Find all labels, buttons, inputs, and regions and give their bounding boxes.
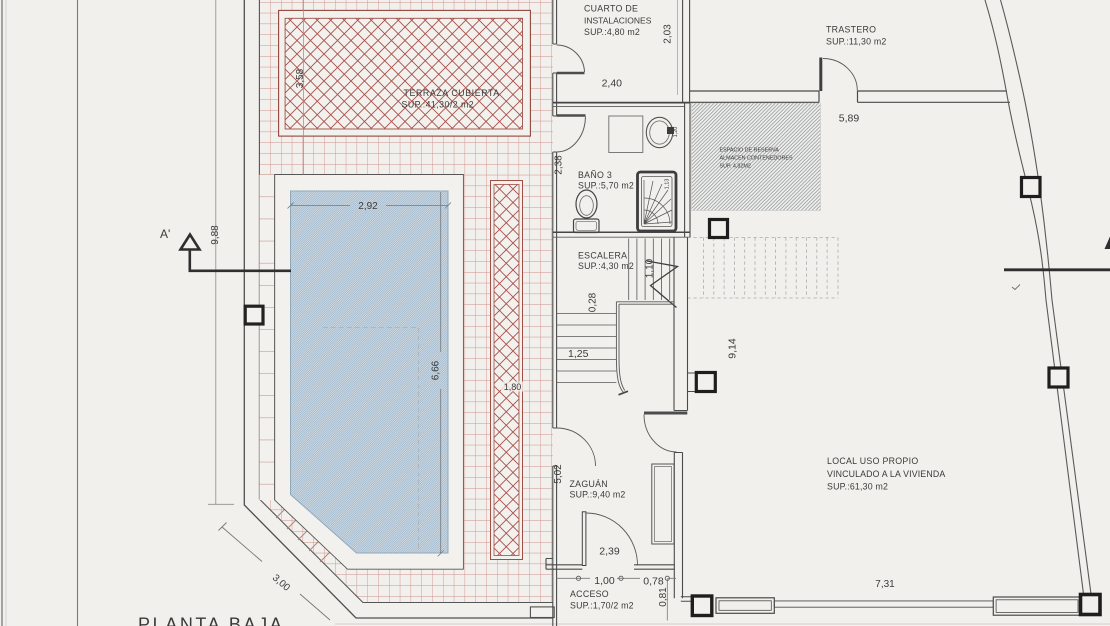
- svg-text:1,25: 1,25: [568, 348, 589, 360]
- svg-text:1,10: 1,10: [645, 258, 656, 278]
- svg-text:SUP.:5,70 m2: SUP.:5,70 m2: [578, 181, 634, 191]
- svg-text:ZAGUÁN: ZAGUÁN: [570, 479, 608, 489]
- svg-text:2,03: 2,03: [663, 24, 674, 44]
- svg-text:5,02: 5,02: [553, 464, 564, 484]
- svg-text:5,89: 5,89: [839, 113, 860, 125]
- svg-text:9,14: 9,14: [727, 338, 739, 359]
- svg-text:SUP. 4,82M2: SUP. 4,82M2: [720, 164, 751, 170]
- svg-text:ALMACEN CONTENEDORES: ALMACEN CONTENEDORES: [720, 156, 793, 162]
- svg-text:SUP.:41,30/2 m2: SUP.:41,30/2 m2: [402, 100, 475, 110]
- svg-text:2,40: 2,40: [602, 78, 623, 90]
- svg-text:A': A': [160, 227, 170, 241]
- svg-text:INSTALACIONES: INSTALACIONES: [584, 16, 652, 26]
- svg-text:CUARTO DE: CUARTO DE: [584, 4, 638, 14]
- svg-text:1,13: 1,13: [665, 179, 671, 190]
- svg-text:SUP.:9,40 m2: SUP.:9,40 m2: [570, 490, 626, 500]
- svg-text:2,92: 2,92: [358, 201, 378, 212]
- svg-text:9,88: 9,88: [210, 225, 221, 245]
- svg-text:LOCAL USO PROPIO: LOCAL USO PROPIO: [827, 456, 919, 466]
- svg-text:0,28: 0,28: [588, 292, 599, 312]
- svg-text:TERRAZA CUBIERTA: TERRAZA CUBIERTA: [404, 88, 500, 98]
- svg-text:6,66: 6,66: [431, 360, 442, 380]
- svg-text:3,58: 3,58: [295, 68, 306, 88]
- svg-text:TRASTERO: TRASTERO: [826, 25, 876, 35]
- svg-text:1,00: 1,00: [594, 575, 615, 587]
- svg-text:SUP.:11,30 m2: SUP.:11,30 m2: [826, 37, 886, 47]
- svg-text:ACCESO: ACCESO: [570, 589, 609, 599]
- svg-text:SUP.:1,70/2 m2: SUP.:1,70/2 m2: [570, 601, 634, 611]
- svg-text:1,80: 1,80: [504, 382, 522, 392]
- svg-text:SUP.:61,30 m2: SUP.:61,30 m2: [827, 482, 888, 492]
- svg-text:ESCALERA: ESCALERA: [578, 251, 627, 261]
- svg-text:0,81: 0,81: [658, 587, 669, 607]
- svg-text:SUP.:4,30 m2: SUP.:4,30 m2: [578, 261, 634, 271]
- svg-text:VINCULADO A LA VIVIENDA: VINCULADO A LA VIVIENDA: [827, 469, 945, 479]
- svg-text:7,31: 7,31: [875, 579, 895, 590]
- svg-text:2,39: 2,39: [599, 546, 620, 558]
- svg-text:1,20: 1,20: [673, 127, 679, 138]
- svg-text:2,38: 2,38: [554, 155, 565, 175]
- svg-text:ESPACIO DE RESERVA: ESPACIO DE RESERVA: [720, 148, 780, 154]
- svg-text:SUP.:4,80 m2: SUP.:4,80 m2: [584, 27, 640, 37]
- svg-text:0,78: 0,78: [643, 576, 664, 588]
- svg-text:PLANTA BAJA: PLANTA BAJA: [138, 615, 284, 626]
- svg-text:BAÑO 3: BAÑO 3: [578, 170, 612, 180]
